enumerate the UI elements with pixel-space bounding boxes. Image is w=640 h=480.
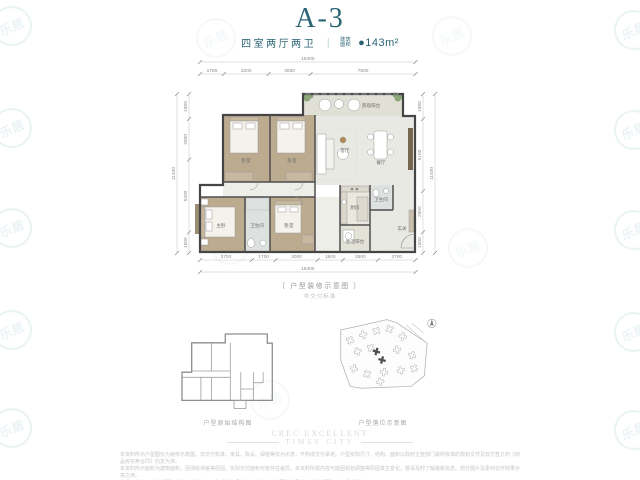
dim-top-seg: 1700 bbox=[207, 68, 218, 74]
stove-burner bbox=[356, 188, 359, 191]
structure-caption: 户型原始结构图 bbox=[158, 418, 298, 427]
dim-left-seg: 5200 bbox=[183, 190, 189, 201]
stove-burner bbox=[351, 188, 354, 191]
tv-cabinet bbox=[408, 128, 413, 170]
sofa bbox=[317, 134, 326, 174]
sink bbox=[384, 189, 389, 194]
wardrobe bbox=[225, 172, 253, 181]
pillow bbox=[278, 207, 286, 212]
dim-left-seg: 1800 bbox=[183, 101, 189, 112]
dim-bottom-total: 15400 bbox=[301, 266, 315, 272]
logo-rule bbox=[361, 442, 413, 443]
dining-chair bbox=[368, 134, 374, 140]
pillow bbox=[290, 207, 298, 212]
subtitle-divider: ｜ bbox=[323, 35, 333, 50]
logo-line2: TIMES CITY bbox=[285, 438, 354, 447]
shoe-cabinet bbox=[409, 210, 414, 232]
unit-subtitle: 四室两厅两卫 ｜ 建筑 面积 ●143m² bbox=[0, 35, 640, 50]
disclaimer-line: 本资料所示面积为建筑面积，因测绘误差等原因，实际交付面积可能存在差异。本资料所载… bbox=[120, 466, 520, 480]
bed-headboard bbox=[230, 117, 258, 121]
logo-line2-wrap: TIMES CITY bbox=[0, 438, 640, 447]
floorplan-page: 乐居 乐居 乐居 乐居 乐居 乐居 乐居 乐居 乐居 乐居 乐居 乐居 乐居 乐… bbox=[0, 0, 640, 480]
structure-annex bbox=[234, 400, 246, 408]
leju-watermark-icon: 乐居 bbox=[608, 204, 640, 257]
bed-headboard bbox=[201, 207, 205, 237]
room-label-living: 客厅 bbox=[340, 147, 350, 154]
toilet bbox=[248, 239, 255, 248]
dim-top-seg: 3000 bbox=[284, 68, 295, 74]
room-label-master: 主卧 bbox=[216, 222, 226, 229]
logo-line1: CREC EXCELLENT bbox=[0, 429, 640, 438]
room-label-balcony: 景观阳台 bbox=[362, 102, 381, 109]
site-plan bbox=[318, 314, 448, 422]
room-label-bedroom: 卧室 bbox=[284, 222, 294, 229]
disclaimer-line: 本资料所示户型图仅为装修示意图，非交付标准，家具、陈设、绿植等仅为示意，不构成交… bbox=[120, 452, 520, 466]
site-boundary bbox=[341, 320, 427, 389]
pillow bbox=[233, 123, 242, 129]
room-label-bath: 卫生间 bbox=[250, 222, 264, 229]
dim-bottom-seg: 3700 bbox=[221, 254, 232, 260]
stool bbox=[340, 137, 346, 143]
room-label-bath: 卫生间 bbox=[374, 196, 388, 203]
area-label: 建筑 面积 bbox=[340, 38, 351, 48]
pillow bbox=[206, 210, 212, 219]
room-label-service-balcony: 生活阳台 bbox=[346, 238, 365, 245]
disclaimer-text: 本资料所示户型图仅为装修示意图，非交付标准，家具、陈设、绿植等仅为示意，不构成交… bbox=[120, 452, 520, 480]
balcony-chair bbox=[319, 99, 331, 111]
dim-right-seg: 2950 bbox=[417, 206, 423, 217]
pillow bbox=[293, 123, 302, 129]
north-compass-icon bbox=[428, 319, 436, 327]
plan-caption-note: 非交付标准 bbox=[0, 292, 640, 300]
pillow bbox=[280, 123, 289, 129]
dim-bottom-seg: 1800 bbox=[325, 254, 336, 260]
dim-bottom-seg: 2700 bbox=[391, 254, 402, 260]
dining-chair bbox=[368, 149, 374, 155]
dim-top-seg: 7500 bbox=[358, 68, 369, 74]
header: A-3 四室两厅两卫 ｜ 建筑 面积 ●143m² bbox=[0, 4, 640, 50]
room-label-entry: 玄关 bbox=[397, 225, 407, 232]
main-floorplan: 15400 1700 3200 3000 7500 3700 1700 3000… bbox=[155, 52, 455, 292]
plan-caption: 〔 户型装修示意图 〕 bbox=[0, 281, 640, 291]
sofa-seat bbox=[326, 139, 334, 169]
dim-bottom-seg: 3000 bbox=[291, 254, 302, 260]
toilet bbox=[373, 189, 379, 197]
structure-inner-walls bbox=[182, 343, 263, 401]
balcony-table bbox=[335, 100, 344, 109]
dining-chair bbox=[388, 149, 394, 155]
dim-top-seg: 3200 bbox=[241, 68, 252, 74]
room-label-dining: 餐厅 bbox=[376, 159, 386, 166]
dim-left-seg: 2900 bbox=[183, 134, 189, 145]
kitchen-counter bbox=[341, 186, 369, 192]
wardrobe bbox=[286, 172, 312, 181]
dim-left-total: 11400 bbox=[171, 167, 177, 180]
developer-logo: CREC EXCELLENT TIMES CITY bbox=[0, 429, 640, 447]
dining-table bbox=[374, 131, 387, 159]
unit-title: A-3 bbox=[0, 4, 640, 34]
leju-watermark-icon: 乐居 bbox=[0, 102, 38, 155]
nightstand bbox=[201, 239, 208, 245]
nightstand bbox=[201, 199, 208, 205]
leju-watermark-icon: 乐居 bbox=[608, 306, 640, 359]
structure-outer-wall bbox=[182, 334, 272, 400]
dim-right-seg: 1500 bbox=[417, 237, 423, 248]
pillow bbox=[206, 222, 212, 231]
room-count-label: 四室两厅两卫 bbox=[241, 35, 316, 50]
area-value: ●143m² bbox=[358, 37, 399, 49]
leju-watermark-icon: 乐居 bbox=[0, 202, 38, 255]
dim-left-seg: 1500 bbox=[183, 237, 189, 248]
sink bbox=[260, 240, 266, 246]
dim-right-total: 11400 bbox=[429, 167, 435, 180]
leju-watermark-icon: 乐居 bbox=[0, 304, 38, 357]
dim-right-seg: 1800 bbox=[417, 101, 423, 112]
kitchen-counter bbox=[341, 192, 347, 224]
room-label-bedroom: 卧室 bbox=[241, 157, 251, 164]
leju-watermark-icon: 乐居 bbox=[608, 104, 640, 157]
balcony-chair bbox=[348, 99, 360, 111]
bed-headboard bbox=[277, 117, 305, 121]
room-label-kitchen: 厨房 bbox=[350, 204, 360, 211]
dining-chair bbox=[388, 134, 394, 140]
dim-top-total: 15400 bbox=[301, 56, 315, 62]
bed-headboard bbox=[275, 201, 301, 205]
kitchen-sink bbox=[342, 200, 346, 204]
structure-outline bbox=[158, 322, 298, 422]
pillow bbox=[246, 123, 255, 129]
site-caption: 户型落位示意图 bbox=[318, 418, 448, 427]
logo-rule bbox=[227, 442, 279, 443]
dim-right-seg: 5150 bbox=[417, 149, 423, 160]
dim-bottom-seg: 1700 bbox=[258, 254, 269, 260]
wardrobe bbox=[302, 235, 314, 244]
room-label-bedroom: 卧室 bbox=[287, 157, 297, 164]
dim-bottom-seg: 2500 bbox=[355, 254, 366, 260]
